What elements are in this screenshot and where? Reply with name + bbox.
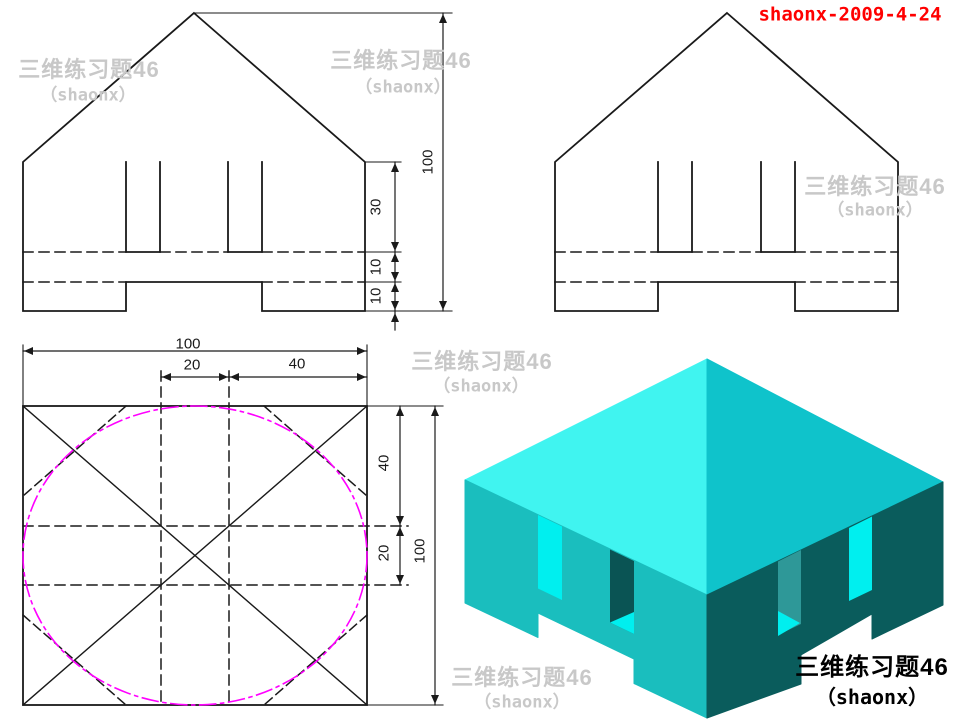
watermark-line2: （shaonx） <box>433 379 528 396</box>
dim-label-leg-height: 10 <box>369 288 384 305</box>
front-slot-2 <box>228 162 262 252</box>
date-stamp: shaonx-2009-4-24 <box>758 6 941 25</box>
front-slot-1 <box>126 162 160 252</box>
side-hidden-lines <box>555 252 898 282</box>
side-outline <box>555 13 898 311</box>
side-view <box>555 13 898 311</box>
watermark-line1: 三维练习题46 <box>451 667 592 689</box>
dim-label-slot-to-edge: 40 <box>289 357 306 372</box>
dim-label-top-depth: 40 <box>377 455 392 472</box>
dim-label-mid-depth: 20 <box>377 545 392 562</box>
title-line1: 三维练习题46 <box>795 656 949 680</box>
dim-label-total-depth: 100 <box>413 538 428 563</box>
watermark-line2: （shaonx） <box>40 88 135 105</box>
side-slot-1 <box>658 162 692 252</box>
watermark-line1: 三维练习题46 <box>18 59 159 81</box>
plan-view <box>23 345 443 705</box>
iso-right-slot-2 <box>849 517 872 602</box>
watermark-line1: 三维练习题46 <box>411 351 552 373</box>
side-slot-2 <box>761 162 795 252</box>
drawing-sheet: 三维练习题46 （shaonx） 三维练习题46 （shaonx） 三维练习题4… <box>0 0 960 720</box>
dim-label-slot-depth: 30 <box>369 199 384 216</box>
watermark-line2: （shaonx） <box>827 203 922 220</box>
iso-left-slot-1 <box>538 515 562 600</box>
dim-label-web-height: 10 <box>369 259 384 276</box>
watermark-line2: （shaonx） <box>474 695 569 712</box>
front-hidden-lines <box>23 252 365 282</box>
dim-label-total-height: 100 <box>421 149 436 174</box>
title-line2: （shaonx） <box>816 687 928 707</box>
watermark-line1: 三维练习题46 <box>330 50 471 72</box>
watermark-line2: （shaonx） <box>355 80 450 97</box>
dim-label-total-width: 100 <box>175 337 200 352</box>
watermark-line1: 三维练习题46 <box>804 176 945 198</box>
dim-label-slot-width: 20 <box>184 358 201 373</box>
